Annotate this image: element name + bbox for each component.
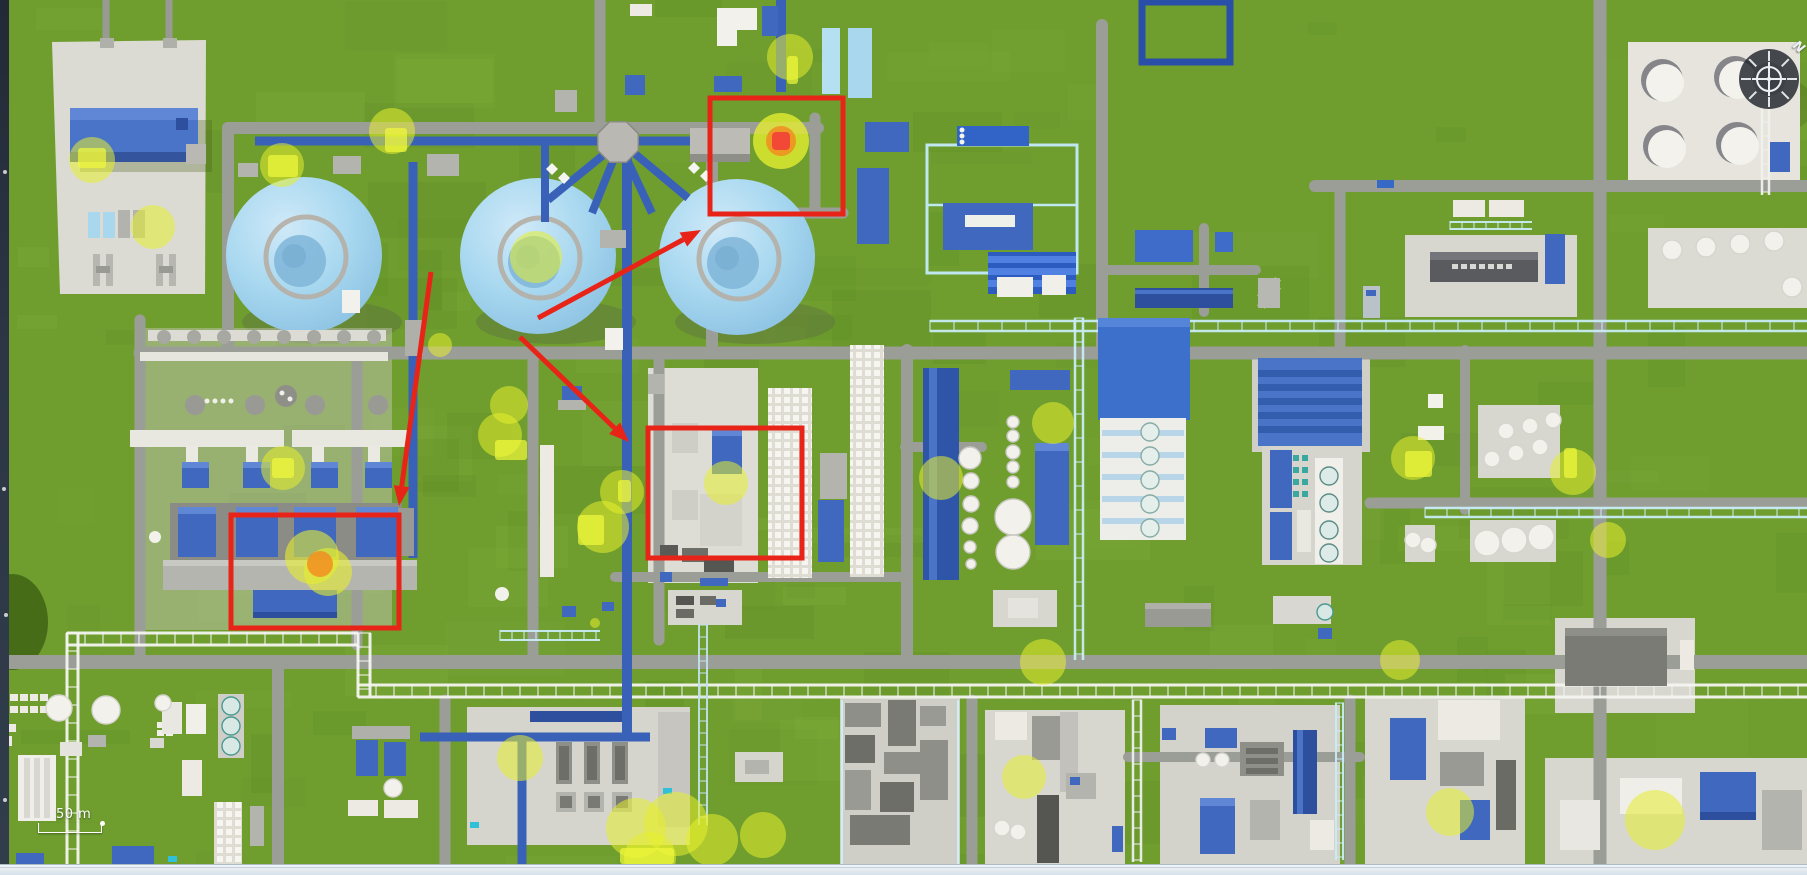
storage-tank bbox=[275, 385, 297, 407]
building-block bbox=[1680, 640, 1694, 670]
highlight-marker[interactable] bbox=[1380, 640, 1420, 680]
building-block bbox=[1293, 467, 1299, 473]
building-block bbox=[845, 770, 871, 810]
gas-holder-dome-shade bbox=[715, 246, 739, 270]
storage-tank bbox=[964, 541, 976, 553]
building-block bbox=[1246, 758, 1278, 764]
grass-patch bbox=[832, 290, 931, 351]
storage-tank bbox=[1320, 467, 1338, 485]
grass-patch bbox=[931, 150, 1031, 164]
grass-patch bbox=[783, 587, 846, 605]
grass-patch bbox=[1631, 456, 1709, 491]
building-block bbox=[1302, 455, 1308, 461]
building-block bbox=[1258, 278, 1280, 308]
storage-tank bbox=[384, 779, 402, 797]
building-block bbox=[615, 746, 625, 780]
storage-tank bbox=[960, 140, 965, 145]
building-block bbox=[30, 694, 38, 701]
building-block bbox=[112, 846, 154, 864]
storage-tank bbox=[149, 531, 161, 543]
highlight-marker[interactable] bbox=[740, 812, 786, 858]
storage-tank bbox=[222, 717, 240, 735]
storage-tank bbox=[157, 330, 171, 344]
building-block bbox=[768, 388, 812, 578]
building-block bbox=[555, 90, 577, 112]
building-block bbox=[368, 446, 380, 464]
storage-tank bbox=[995, 499, 1031, 535]
building-block bbox=[1270, 512, 1292, 560]
storage-tank bbox=[960, 128, 965, 133]
storage-tank bbox=[185, 395, 205, 415]
storage-tank bbox=[1508, 445, 1524, 461]
storage-tank bbox=[1006, 445, 1020, 459]
highlight-marker[interactable] bbox=[704, 461, 748, 505]
highlight-marker-core[interactable] bbox=[78, 148, 106, 168]
storage-tank bbox=[1420, 537, 1436, 553]
storage-tank bbox=[1007, 461, 1019, 473]
building-block bbox=[1112, 826, 1123, 852]
building-block bbox=[88, 735, 106, 747]
building-block bbox=[560, 796, 572, 808]
building-block bbox=[884, 752, 924, 774]
storage-tank bbox=[1320, 521, 1338, 539]
building-block bbox=[470, 822, 479, 828]
building-block bbox=[30, 706, 38, 713]
storage-tank bbox=[221, 399, 226, 404]
alarm-marker-core[interactable] bbox=[772, 132, 790, 150]
building-block bbox=[1302, 467, 1308, 473]
storage-tank bbox=[337, 330, 351, 344]
building-block bbox=[168, 856, 177, 862]
building-block bbox=[1366, 290, 1376, 296]
storage-tank bbox=[1405, 532, 1421, 548]
highlight-marker[interactable] bbox=[1426, 788, 1474, 836]
building-block bbox=[20, 694, 28, 701]
storage-tank bbox=[213, 399, 218, 404]
compass[interactable]: N bbox=[1736, 46, 1802, 112]
building-block bbox=[1293, 730, 1317, 814]
snow-dot bbox=[2, 487, 6, 491]
building-block bbox=[163, 38, 177, 48]
highlight-marker-core[interactable] bbox=[620, 848, 674, 864]
snow-dot bbox=[3, 798, 7, 802]
building-block bbox=[1452, 264, 1458, 269]
storage-tank bbox=[1320, 544, 1338, 562]
building-block bbox=[676, 609, 694, 618]
storage-tank bbox=[1646, 64, 1684, 102]
building-block bbox=[850, 345, 884, 577]
building-block bbox=[1037, 795, 1059, 863]
highlight-marker[interactable] bbox=[686, 814, 738, 866]
highlight-marker-core[interactable] bbox=[1405, 451, 1432, 477]
building-block bbox=[820, 453, 847, 499]
scale-dot bbox=[100, 821, 105, 826]
building-block bbox=[1302, 479, 1308, 485]
building-block bbox=[1035, 443, 1069, 451]
highlight-marker[interactable] bbox=[428, 333, 452, 357]
building-block bbox=[1565, 628, 1667, 636]
building-block bbox=[1258, 426, 1362, 433]
building-block bbox=[311, 462, 338, 468]
compass-ring-icon bbox=[1736, 46, 1802, 112]
building-block bbox=[660, 572, 672, 582]
building-block bbox=[238, 163, 258, 177]
storage-tank bbox=[1141, 519, 1159, 537]
building-block bbox=[96, 266, 110, 273]
building-block bbox=[365, 462, 392, 468]
building-block bbox=[1293, 455, 1299, 461]
storage-tank bbox=[1007, 430, 1019, 442]
building-block bbox=[1098, 318, 1190, 420]
storage-tank bbox=[963, 496, 979, 512]
plant-map-canvas[interactable] bbox=[0, 0, 1807, 875]
storage-tank bbox=[46, 695, 72, 721]
building-block bbox=[1035, 443, 1069, 545]
storage-tank bbox=[222, 697, 240, 715]
building-block bbox=[1762, 790, 1802, 850]
building-block bbox=[1565, 628, 1667, 686]
building-block bbox=[20, 706, 28, 713]
storage-tank bbox=[1662, 240, 1682, 260]
building-block bbox=[1246, 748, 1278, 754]
storage-tank bbox=[1196, 753, 1210, 767]
highlight-marker[interactable] bbox=[510, 231, 562, 283]
grass-patch bbox=[36, 8, 106, 30]
building-block bbox=[1488, 264, 1494, 269]
building-block bbox=[1162, 728, 1176, 740]
building-block bbox=[356, 740, 378, 776]
building-block bbox=[997, 277, 1033, 297]
storage-tank bbox=[960, 134, 965, 139]
desktop-edge-strip bbox=[0, 0, 9, 875]
building-block bbox=[700, 596, 716, 605]
storage-tank bbox=[1782, 277, 1802, 297]
building-block bbox=[1258, 384, 1362, 391]
storage-tank bbox=[1648, 130, 1686, 168]
building-block bbox=[600, 230, 626, 248]
building-block bbox=[845, 735, 875, 763]
building-block bbox=[178, 507, 216, 557]
storage-tank bbox=[368, 395, 388, 415]
storage-tank bbox=[1522, 418, 1538, 434]
building-block bbox=[762, 6, 778, 36]
storage-tank bbox=[1010, 824, 1026, 840]
snow-dot bbox=[3, 170, 7, 174]
building-block bbox=[602, 602, 614, 611]
building-block bbox=[24, 758, 30, 818]
storage-tank bbox=[1532, 439, 1548, 455]
building-block bbox=[118, 210, 130, 238]
building-block bbox=[865, 122, 909, 152]
building-block bbox=[292, 430, 408, 447]
storage-tank bbox=[1545, 412, 1561, 428]
building-block bbox=[1560, 800, 1600, 850]
highlight-marker-core[interactable] bbox=[272, 458, 294, 478]
grass-patch bbox=[814, 268, 932, 286]
building-block bbox=[1215, 232, 1233, 252]
highlight-marker[interactable] bbox=[1625, 790, 1685, 850]
grass-patch bbox=[929, 43, 988, 66]
storage-tank bbox=[205, 399, 210, 404]
building-block bbox=[1461, 264, 1467, 269]
building-block bbox=[103, 212, 115, 238]
storage-tank bbox=[996, 535, 1030, 569]
building-block bbox=[988, 256, 1076, 263]
storage-tank bbox=[305, 395, 325, 415]
storage-tank bbox=[959, 447, 981, 469]
building-block bbox=[1200, 798, 1235, 854]
building-block bbox=[1010, 370, 1070, 390]
highlight-marker[interactable] bbox=[1002, 755, 1046, 799]
building-block bbox=[60, 742, 82, 756]
building-block bbox=[717, 26, 737, 46]
storage-tank bbox=[1528, 524, 1554, 550]
building-block bbox=[1545, 234, 1565, 284]
building-block bbox=[384, 800, 418, 818]
building-block bbox=[818, 500, 844, 562]
window-edge-bar[interactable] bbox=[0, 864, 1807, 875]
building-block bbox=[1438, 700, 1500, 740]
building-block bbox=[676, 596, 694, 605]
building-block bbox=[716, 599, 726, 607]
building-block bbox=[1098, 318, 1190, 327]
building-block bbox=[1205, 728, 1237, 748]
building-block bbox=[540, 445, 554, 577]
building-block bbox=[920, 706, 946, 726]
storage-tank bbox=[247, 330, 261, 344]
building-block bbox=[1496, 760, 1516, 830]
storage-tank bbox=[1764, 231, 1784, 251]
building-block bbox=[1479, 264, 1485, 269]
storage-tank bbox=[1141, 495, 1159, 513]
storage-tank bbox=[1498, 423, 1514, 439]
building-block bbox=[845, 703, 881, 727]
grass-patch bbox=[345, 1, 447, 51]
storage-tank bbox=[229, 399, 234, 404]
building-block bbox=[1470, 264, 1476, 269]
grass-patch bbox=[1503, 604, 1552, 620]
building-block bbox=[530, 711, 622, 722]
building-block bbox=[88, 212, 100, 238]
building-block bbox=[1258, 412, 1362, 419]
building-block bbox=[1066, 773, 1096, 799]
building-block bbox=[1506, 264, 1512, 269]
building-block bbox=[850, 815, 910, 845]
grass-patch bbox=[655, 0, 722, 17]
highlight-marker-core[interactable] bbox=[385, 128, 407, 152]
building-block bbox=[988, 268, 1076, 275]
storage-tank bbox=[307, 330, 321, 344]
highlight-marker[interactable] bbox=[131, 205, 175, 249]
storage-tank bbox=[1141, 423, 1159, 441]
building-block bbox=[312, 446, 324, 464]
building-block bbox=[1293, 479, 1299, 485]
building-block bbox=[427, 154, 459, 176]
highlight-marker-core[interactable] bbox=[578, 515, 604, 545]
building-block bbox=[1042, 275, 1066, 295]
building-block bbox=[1297, 730, 1303, 814]
grass-patch bbox=[1436, 127, 1466, 142]
highlight-marker[interactable] bbox=[919, 456, 963, 500]
building-block bbox=[1497, 264, 1503, 269]
building-block bbox=[384, 742, 406, 776]
highlight-marker-core[interactable] bbox=[787, 56, 798, 84]
building-block bbox=[1302, 491, 1308, 497]
building-block bbox=[246, 446, 258, 464]
building-block bbox=[214, 802, 242, 864]
building-block bbox=[1250, 800, 1280, 840]
building-block bbox=[1297, 510, 1311, 552]
storage-tank bbox=[962, 518, 978, 534]
building-block bbox=[672, 490, 698, 520]
pipe-junction-octagon bbox=[598, 122, 639, 163]
building-block bbox=[745, 760, 769, 774]
building-block bbox=[1258, 370, 1362, 377]
plant-map-window: 50 m N bbox=[0, 0, 1807, 875]
storage-tank bbox=[222, 737, 240, 755]
building-block bbox=[1246, 768, 1278, 774]
storage-tank bbox=[1317, 604, 1333, 620]
building-block bbox=[660, 545, 678, 557]
gas-holder-dome-shade bbox=[282, 244, 306, 268]
building-block bbox=[630, 4, 652, 16]
grass-patch bbox=[992, 30, 1065, 72]
building-block bbox=[250, 806, 264, 846]
storage-tank bbox=[1474, 530, 1500, 556]
building-block bbox=[130, 430, 284, 447]
highlight-marker[interactable] bbox=[590, 618, 600, 628]
building-block bbox=[1430, 252, 1538, 260]
building-block bbox=[704, 560, 734, 572]
building-block bbox=[880, 782, 914, 812]
storage-tank bbox=[1141, 471, 1159, 489]
storage-tank bbox=[288, 397, 293, 402]
storage-tank bbox=[963, 473, 979, 489]
building-block bbox=[1008, 598, 1038, 618]
building-block bbox=[253, 612, 337, 618]
building-block bbox=[182, 760, 202, 796]
building-block bbox=[10, 694, 18, 701]
storage-tank bbox=[1320, 494, 1338, 512]
building-block bbox=[1428, 394, 1443, 408]
alarm-marker-ring[interactable] bbox=[307, 551, 333, 577]
snow-dot bbox=[4, 613, 8, 617]
storage-tank bbox=[187, 330, 201, 344]
building-block bbox=[562, 606, 576, 617]
building-block bbox=[1293, 491, 1299, 497]
building-block bbox=[100, 38, 114, 48]
building-block bbox=[182, 462, 209, 468]
highlight-marker[interactable] bbox=[497, 735, 543, 781]
building-block bbox=[176, 118, 188, 130]
building-block bbox=[178, 507, 216, 514]
building-block bbox=[159, 266, 173, 273]
building-block bbox=[10, 706, 18, 713]
building-block bbox=[700, 578, 728, 586]
highlight-marker-core[interactable] bbox=[618, 480, 631, 502]
grass-patch bbox=[397, 59, 493, 103]
grass-patch bbox=[1776, 533, 1807, 593]
storage-tank bbox=[1007, 416, 1019, 428]
building-block bbox=[333, 156, 361, 174]
highlight-marker[interactable] bbox=[1020, 639, 1066, 685]
storage-tank bbox=[1215, 753, 1229, 767]
storage-tank bbox=[217, 330, 231, 344]
storage-tank bbox=[92, 696, 120, 724]
building-block bbox=[690, 154, 750, 162]
building-block bbox=[857, 168, 889, 244]
storage-tank bbox=[1141, 447, 1159, 465]
storage-tank bbox=[155, 695, 171, 711]
building-block bbox=[1489, 200, 1524, 217]
grass-patch bbox=[67, 605, 100, 650]
building-block bbox=[1700, 812, 1756, 820]
building-block bbox=[1390, 718, 1426, 780]
highlight-marker[interactable] bbox=[1590, 522, 1626, 558]
building-block bbox=[648, 374, 664, 394]
grass-patch bbox=[106, 330, 134, 345]
building-block bbox=[920, 740, 948, 800]
building-block bbox=[1377, 180, 1394, 188]
building-block bbox=[558, 400, 586, 410]
window-edge-line bbox=[0, 867, 1807, 868]
storage-tank bbox=[495, 587, 509, 601]
building-block bbox=[965, 215, 1015, 227]
building-block bbox=[140, 352, 388, 361]
building-block bbox=[559, 746, 569, 780]
storage-tank bbox=[994, 820, 1010, 836]
building-block bbox=[1070, 777, 1080, 785]
building-block bbox=[888, 700, 916, 746]
building-block bbox=[186, 704, 206, 734]
storage-tank bbox=[966, 559, 976, 569]
building-block bbox=[995, 712, 1027, 740]
storage-tank bbox=[1730, 234, 1750, 254]
grass-patch bbox=[1308, 22, 1337, 35]
building-block bbox=[822, 28, 840, 94]
highlight-marker-core[interactable] bbox=[1564, 448, 1577, 478]
scale-label: 50 m bbox=[56, 808, 102, 821]
storage-tank bbox=[1007, 476, 1019, 488]
storage-tank bbox=[245, 395, 265, 415]
storage-tank bbox=[277, 330, 291, 344]
building-block bbox=[1453, 200, 1485, 217]
scale-bar: 50 m bbox=[38, 808, 102, 833]
building-block bbox=[1770, 142, 1790, 172]
highlight-marker[interactable] bbox=[1032, 402, 1074, 444]
grass-patch bbox=[1306, 639, 1336, 657]
building-block bbox=[348, 800, 378, 816]
concrete-pad bbox=[668, 590, 742, 625]
building-block bbox=[1135, 290, 1233, 294]
building-block bbox=[186, 446, 198, 464]
building-block bbox=[588, 796, 600, 808]
grass-patch bbox=[18, 247, 49, 267]
highlight-marker-core[interactable] bbox=[495, 440, 527, 460]
building-block bbox=[1310, 820, 1334, 850]
building-block bbox=[714, 76, 742, 92]
building-block bbox=[848, 28, 872, 98]
building-block bbox=[1440, 752, 1484, 786]
grass-patch bbox=[17, 315, 57, 329]
building-block bbox=[605, 328, 623, 350]
grass-patch bbox=[58, 487, 94, 524]
building-block bbox=[690, 128, 750, 158]
building-block bbox=[1135, 230, 1193, 262]
storage-tank bbox=[1484, 451, 1500, 467]
storage-tank bbox=[1721, 127, 1759, 165]
highlight-marker-core[interactable] bbox=[268, 155, 298, 177]
